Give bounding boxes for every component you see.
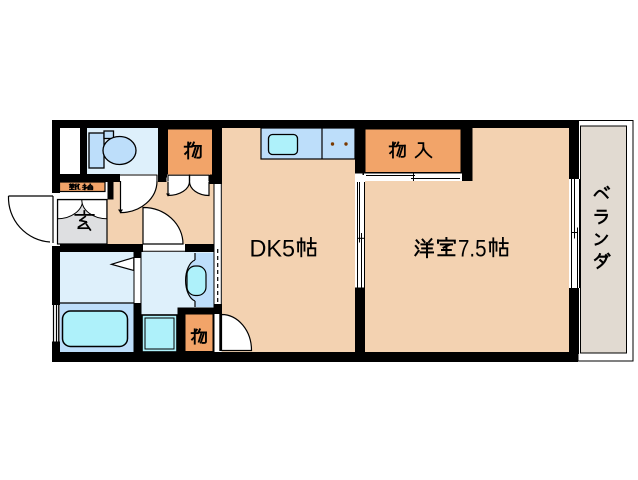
svg-text:7.5: 7.5: [458, 236, 487, 263]
svg-text:DK5: DK5: [250, 236, 296, 263]
